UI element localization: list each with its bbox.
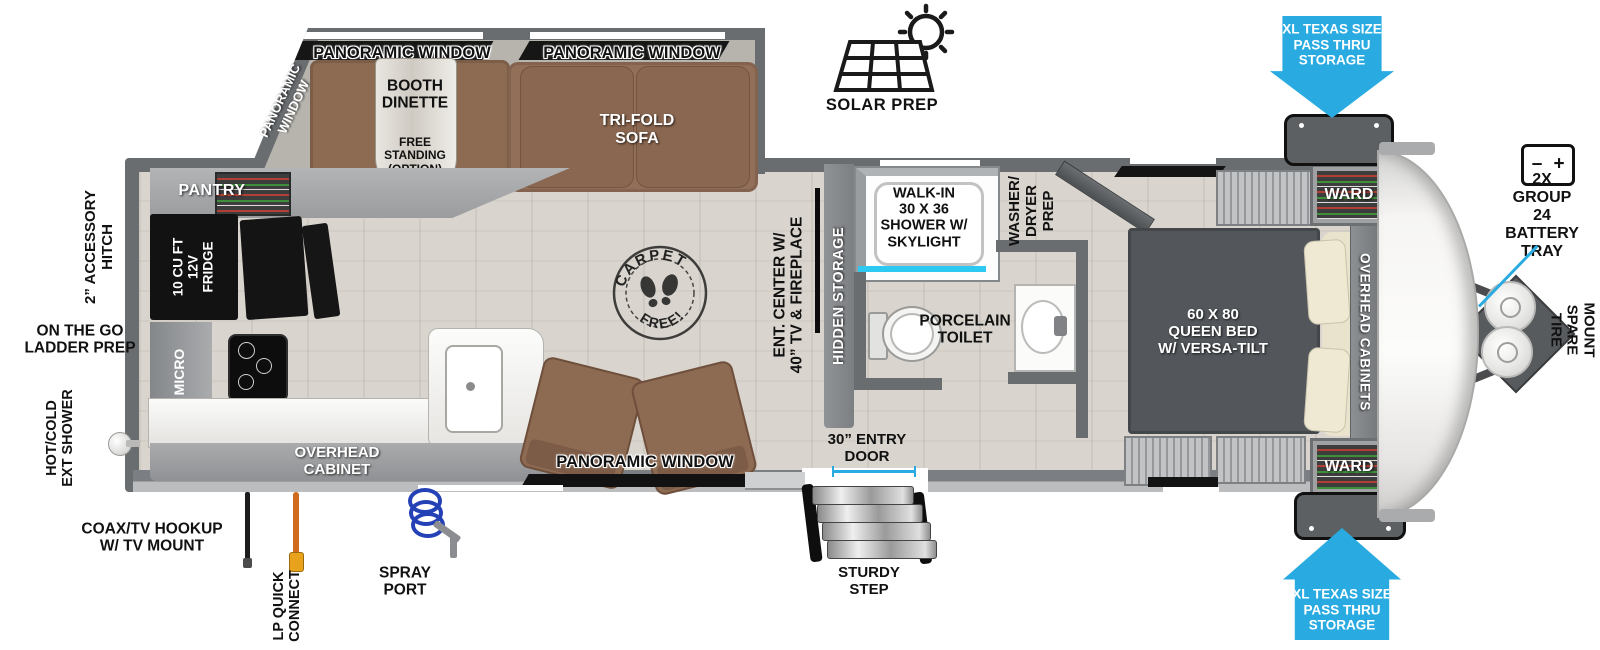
solar-prep-label: SOLAR PREP	[826, 96, 938, 114]
washer-dryer-prep-label: WASHER/ DRYER PREP	[1007, 176, 1057, 246]
carpet-free-stamp: CARPET FREE!	[610, 243, 710, 343]
front-cap	[1377, 150, 1479, 518]
bed-pillow	[1303, 347, 1351, 434]
pass-thru-top-label: XL TEXAS SIZE PASS THRU STORAGE	[1272, 22, 1392, 69]
window-glass	[1114, 166, 1226, 177]
ladder-prep-label: ON THE GO LADDER PREP	[24, 323, 135, 358]
queen-bed-label: 60 X 80 QUEEN BED W/ VERSA-TILT	[1158, 307, 1268, 357]
porcelain-toilet-label: PORCELAIN TOILET	[919, 313, 1010, 348]
battery-tray-label: 2X GROUP 24 BATTERY TRAY	[1505, 171, 1579, 261]
step-tread	[827, 540, 937, 559]
rivet	[1309, 526, 1314, 531]
bedroom-step-cabinet	[1216, 170, 1316, 226]
window-glass	[1148, 477, 1218, 487]
coax-cable-icon	[245, 492, 250, 560]
bath-wall	[1076, 252, 1088, 438]
spare-tire-label: UNDER-MOUNT SPARE TIRE	[1546, 301, 1600, 359]
ext-shower-knob-stem	[126, 440, 140, 447]
ward-top-label: WARD	[1325, 186, 1374, 204]
hidden-storage-label: HIDDEN STORAGE	[831, 227, 847, 365]
bedroom-step-cabinet	[1216, 436, 1306, 484]
door-width-tick	[914, 466, 916, 477]
pass-thru-arrow-bottom: XL TEXAS SIZE PASS THRU STORAGE	[1283, 528, 1401, 640]
door-width-line	[833, 470, 915, 473]
solar-prep-icon	[828, 2, 963, 97]
tank-valve	[1500, 297, 1521, 318]
bottom-window-trim	[418, 485, 563, 491]
coax-label: COAX/TV HOOKUP W/ TV MOUNT	[81, 521, 222, 556]
sink-faucet-icon	[466, 382, 475, 391]
fridge-label: 10 CU FT 12V FRIDGE	[170, 238, 215, 297]
front-cap-trim	[1379, 509, 1435, 522]
tv-icon	[815, 188, 820, 333]
kitchen-counter-dark	[240, 216, 309, 320]
bed-pillow	[1303, 239, 1351, 326]
sturdy-step-label: STURDY STEP	[838, 565, 900, 599]
shower-label: WALK-IN 30 X 36 SHOWER W/ SKYLIGHT	[881, 186, 968, 251]
ward-bottom-label: WARD	[1325, 458, 1374, 476]
step-tread	[817, 504, 923, 523]
overhead-cabinets-label: OVERHEAD CABINETS	[1357, 253, 1372, 411]
front-cap-trim	[1379, 142, 1435, 155]
overhead-cabinet-label: OVERHEAD CABINET	[294, 445, 379, 479]
shower-skylight-accent	[858, 266, 986, 272]
panoramic-window-label-bottom: PANORAMIC WINDOW	[556, 453, 734, 471]
window-trim	[1130, 158, 1216, 164]
pantry-label: PANTRY	[179, 182, 246, 200]
ent-center-label: ENT. CENTER W/ 40” TV & FIREPLACE	[772, 217, 807, 374]
cooktop-burner	[238, 374, 254, 390]
cooktop-burner	[238, 342, 255, 359]
pass-thru-bottom-label: XL TEXAS SIZE PASS THRU STORAGE	[1285, 587, 1399, 634]
step-tread	[812, 486, 914, 505]
boot-print-icon	[638, 272, 681, 308]
lp-hose-icon	[293, 492, 299, 554]
coax-cable-plug	[243, 558, 252, 568]
rivet	[1299, 123, 1304, 128]
bath-wall	[1008, 372, 1078, 384]
tri-fold-sofa-label: TRI-FOLD SOFA	[600, 112, 675, 148]
bath-wall	[854, 378, 942, 390]
window-trim	[1163, 487, 1219, 492]
panoramic-window-label-top-right: PANORAMIC WINDOW	[543, 44, 721, 62]
rivet	[1374, 123, 1379, 128]
spray-nozzle-icon	[450, 536, 457, 558]
carpet-free-bottom-text: FREE!	[637, 307, 687, 332]
accessory-hitch-label: 2” ACCESSORY HITCH	[83, 190, 117, 304]
svg-text:FREE!: FREE!	[637, 307, 687, 332]
window-trim	[880, 160, 980, 166]
propane-tank	[1481, 326, 1533, 378]
tank-valve	[1497, 342, 1518, 363]
booth-dinette-label: BOOTH DINETTE	[382, 78, 448, 113]
bath-wall	[854, 272, 866, 390]
entry-door-label: 30” ENTRY DOOR	[828, 432, 907, 466]
cooktop-burner	[256, 358, 272, 374]
vanity-faucet-icon	[1054, 316, 1067, 336]
rivet	[1386, 526, 1391, 531]
ext-shower-label: HOT/COLD EXT SHOWER	[44, 389, 76, 486]
floorplan-diagram: PANORAMIC WINDOW PANORAMIC WINDOW PANORA…	[0, 0, 1600, 650]
micro-label: MICRO	[172, 349, 188, 396]
slideout-window-trim	[530, 32, 725, 39]
entry-door-landing	[745, 472, 805, 490]
door-width-tick	[832, 466, 834, 477]
pass-thru-arrow-top: XL TEXAS SIZE PASS THRU STORAGE	[1270, 16, 1394, 118]
spray-port-label: SPRAY PORT	[379, 565, 431, 600]
lp-quick-connect-label: LP QUICK CONNECT	[271, 570, 303, 642]
step-tread	[822, 522, 931, 541]
slideout-window-trim	[298, 32, 483, 39]
